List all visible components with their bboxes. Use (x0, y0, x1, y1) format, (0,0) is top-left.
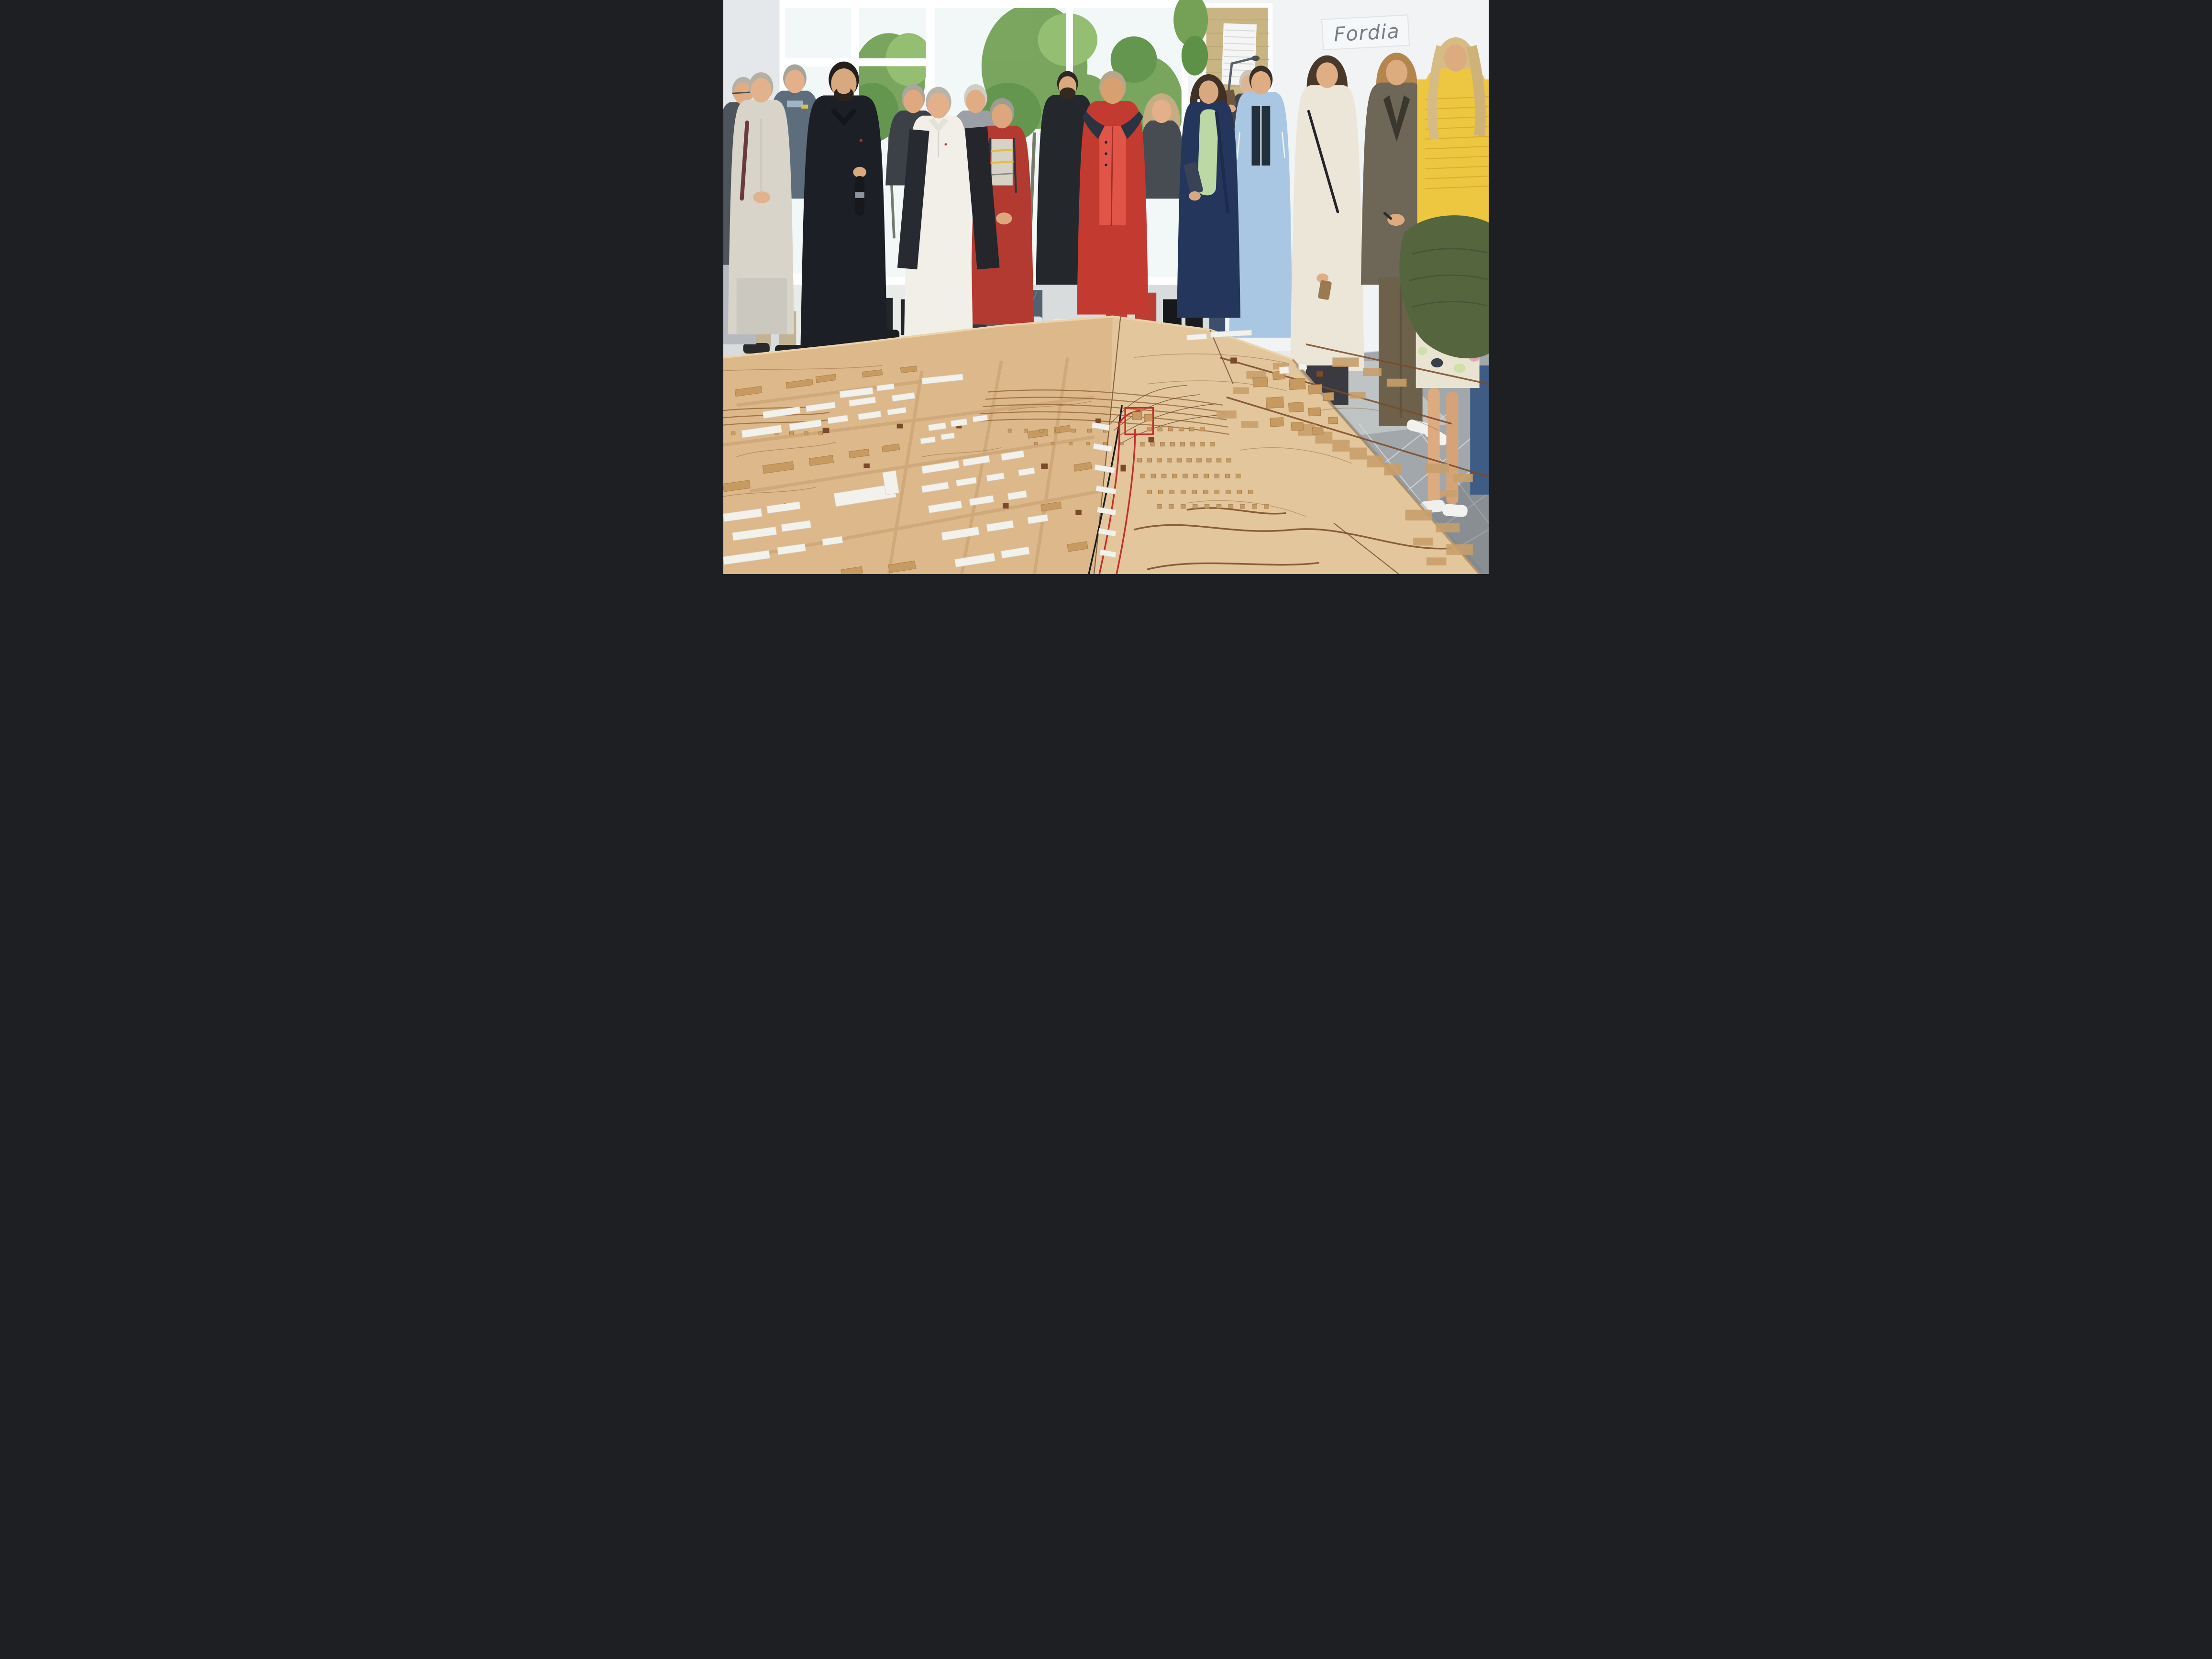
frame-top (780, 0, 1187, 8)
tiny-house (1190, 442, 1195, 446)
tiny-house (1236, 474, 1240, 478)
tiny-house (1187, 458, 1192, 462)
model-building (1120, 465, 1126, 472)
engraved-footprint (1446, 544, 1472, 555)
engraved-footprint (1367, 455, 1384, 467)
tiny-house (1200, 442, 1205, 446)
person-man-black-sweater (800, 62, 888, 371)
tiny-house (1215, 474, 1219, 478)
tiny-house (1137, 458, 1142, 462)
model-building (1075, 510, 1081, 515)
tiny-house (1192, 490, 1197, 494)
face (1316, 62, 1338, 88)
tiny-house (1035, 442, 1038, 445)
torso (800, 95, 888, 371)
tiny-house (1158, 490, 1163, 494)
model-building (1308, 408, 1321, 416)
tiny-house (1157, 458, 1162, 462)
engraved-footprint (1332, 357, 1359, 366)
tiny-house (1024, 429, 1028, 432)
tiny-house (1056, 429, 1060, 432)
person-woman-green-scarf (1177, 74, 1240, 318)
scene-canvas: Fordia (723, 0, 1489, 574)
tiny-house (1147, 490, 1152, 494)
tiny-house (1069, 442, 1072, 445)
model-building (1289, 402, 1304, 412)
model-building (1289, 378, 1305, 390)
engraved-footprint (1387, 379, 1407, 387)
tiny-house (1172, 474, 1177, 478)
tiny-house (1206, 458, 1211, 462)
model-building (1316, 371, 1323, 376)
tiny-house (1210, 442, 1215, 446)
tiny-house (1249, 490, 1253, 494)
engraved-footprint (1332, 440, 1349, 452)
face (1152, 100, 1172, 123)
engraved-footprint (1349, 392, 1365, 398)
tiny-house (1183, 474, 1188, 478)
tiny-house (1194, 474, 1198, 478)
tiny-house (1147, 427, 1152, 431)
model-building (1003, 503, 1008, 509)
face (992, 104, 1012, 128)
lamp-head (1251, 55, 1260, 61)
model-building (1149, 437, 1154, 442)
face (928, 93, 949, 119)
model-building (1298, 363, 1306, 369)
engraved-footprint (1233, 387, 1249, 394)
tiny-house (1217, 505, 1221, 509)
engraved-footprint (1453, 474, 1473, 482)
tiny-house (1158, 427, 1162, 431)
tiny-house (1103, 442, 1106, 445)
tiny-house (1087, 429, 1091, 432)
tiny-house (1179, 427, 1183, 431)
tiny-house (1072, 429, 1075, 432)
wall-sign: Fordia (1322, 15, 1409, 50)
tiny-house (1200, 427, 1205, 431)
tree-foliage (1182, 36, 1208, 76)
engraved-footprint (1440, 490, 1457, 497)
model-building (1041, 464, 1048, 469)
face (1386, 60, 1407, 86)
engraved-footprint (1405, 510, 1432, 520)
face (785, 70, 805, 93)
model-building (823, 428, 829, 433)
model-building (1291, 422, 1304, 431)
tiny-house (1264, 505, 1269, 509)
model-building (1266, 397, 1283, 409)
face (751, 78, 771, 102)
model-building (1313, 427, 1324, 434)
tiny-house (1217, 458, 1221, 462)
tiny-house (1225, 474, 1230, 478)
person-woman-beige (728, 72, 794, 334)
photo-scene: Fordia (723, 0, 1489, 574)
tiny-house (1147, 458, 1152, 462)
tiny-house (1181, 505, 1185, 509)
engraved-footprint (1413, 538, 1433, 546)
tiny-house (1169, 505, 1173, 509)
foot-or-leg (743, 343, 770, 354)
tiny-house (1040, 429, 1044, 432)
model-building (897, 424, 903, 429)
tiny-house (1193, 505, 1197, 509)
tiny-house (818, 431, 822, 435)
tiny-house (1120, 442, 1124, 445)
tiny-house (731, 431, 735, 435)
face (1251, 71, 1271, 95)
engraved-footprint (1363, 368, 1382, 376)
face (904, 90, 923, 113)
tiny-house (1228, 505, 1233, 509)
tiny-house (1252, 505, 1257, 509)
tiny-house (1180, 442, 1185, 446)
tiny-house (1189, 427, 1194, 431)
tiny-house (1151, 474, 1156, 478)
tiny-house (1140, 442, 1145, 446)
engraved-footprint (1384, 464, 1401, 476)
tiny-house (1203, 490, 1208, 494)
model-building (863, 464, 869, 468)
tiny-house (1160, 442, 1165, 446)
face (1199, 80, 1218, 104)
torso (1290, 85, 1364, 371)
model-building (1144, 414, 1152, 421)
tiny-house (1170, 442, 1175, 446)
tiny-house (1157, 505, 1162, 509)
tiny-house (1052, 442, 1055, 445)
tiny-house (1140, 474, 1145, 478)
model-building (1230, 357, 1237, 363)
face (1444, 44, 1467, 71)
model-building (1187, 334, 1207, 341)
model-building (1095, 419, 1101, 423)
engraved-footprint (1217, 410, 1237, 419)
engraved-footprint (1349, 448, 1367, 460)
tiny-house (1204, 474, 1209, 478)
engraved-footprint (1425, 464, 1449, 473)
model-building (1253, 377, 1268, 387)
tiny-house (1008, 429, 1012, 432)
tiny-house (1170, 490, 1174, 494)
tiny-house (789, 431, 793, 435)
tiny-house (1168, 427, 1173, 431)
tiny-house (804, 431, 808, 435)
model-building (1279, 366, 1289, 374)
tiny-house (1215, 490, 1219, 494)
engraved-footprint (1241, 421, 1258, 428)
tiny-house (1167, 458, 1172, 462)
sign-text: Fordia (1333, 19, 1400, 46)
person-woman-cream-turtleneck (1290, 55, 1364, 405)
face (1101, 77, 1124, 104)
tiny-house (1226, 490, 1231, 494)
face (966, 90, 985, 113)
model-building (1328, 417, 1338, 424)
tiny-house (1205, 505, 1209, 509)
model-building (1132, 412, 1141, 420)
tiny-house (1197, 458, 1202, 462)
tiny-house (1086, 442, 1089, 445)
tiny-house (1150, 442, 1155, 446)
engraved-footprint (1427, 557, 1447, 565)
tiny-house (1177, 458, 1182, 462)
engraved-footprint (1436, 523, 1460, 532)
tiny-house (1181, 490, 1185, 494)
model-building (1270, 418, 1284, 427)
tiny-house (1237, 490, 1242, 494)
tiny-house (1240, 505, 1245, 509)
tiny-house (1161, 474, 1166, 478)
model-building (1323, 392, 1334, 401)
tiny-house (1227, 458, 1231, 462)
model-building (1308, 384, 1322, 394)
